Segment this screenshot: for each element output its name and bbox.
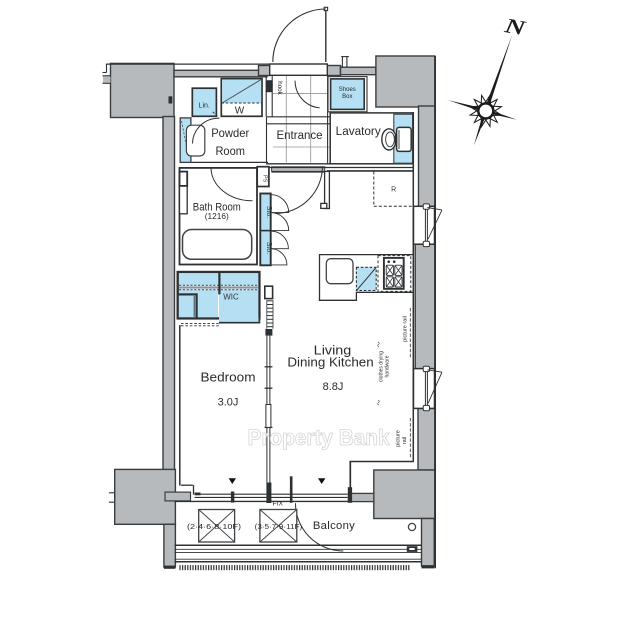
svg-text:3.0J: 3.0J: [218, 396, 239, 408]
svg-text:Sto.: Sto.: [265, 206, 272, 219]
svg-text:(1216): (1216): [205, 211, 229, 221]
svg-text:Lin.: Lin.: [199, 103, 210, 110]
svg-text:R: R: [391, 186, 396, 193]
svg-text:rail: rail: [402, 437, 408, 444]
svg-text:(3·5·7·9·11F): (3·5·7·9·11F): [255, 522, 303, 531]
svg-text:〜: 〜: [377, 399, 383, 405]
svg-text:Dining Kitchen: Dining Kitchen: [287, 354, 373, 369]
svg-text:PS: PS: [261, 175, 267, 183]
svg-text:Entrance: Entrance: [277, 130, 323, 142]
svg-text:(2·4·6·8·10F): (2·4·6·8·10F): [187, 522, 241, 531]
svg-text:FIX: FIX: [273, 501, 284, 508]
svg-text:picture: picture: [396, 430, 402, 447]
svg-text:Lavatory: Lavatory: [336, 126, 381, 138]
svg-text:Property Bank: Property Bank: [248, 425, 391, 450]
svg-text:handware: handware: [385, 355, 391, 377]
svg-text:hook: hook: [276, 81, 283, 95]
svg-text:Powder: Powder: [211, 126, 249, 140]
svg-text:picture rail: picture rail: [403, 316, 409, 342]
svg-text:Sto.: Sto.: [265, 242, 272, 255]
svg-text:WIC: WIC: [223, 293, 239, 302]
svg-text:Bedroom: Bedroom: [201, 370, 256, 385]
svg-text:Room: Room: [215, 144, 245, 158]
svg-text:〜: 〜: [377, 341, 383, 347]
svg-text:8.8J: 8.8J: [323, 381, 344, 393]
svg-text:Box: Box: [342, 94, 352, 100]
svg-text:Balcony: Balcony: [313, 520, 355, 532]
svg-text:Shoes: Shoes: [339, 87, 356, 93]
svg-text:W: W: [235, 106, 245, 117]
